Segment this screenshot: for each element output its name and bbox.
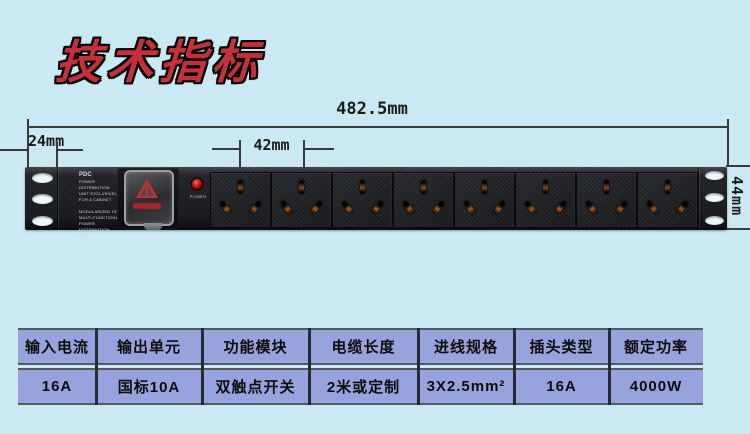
spec-table: 输入电流 输出单元 功能模块 电缆长度 进线规格 插头类型 额定功率 16A 国… [18, 328, 703, 405]
outlet-live-slot [280, 200, 293, 215]
outlet-module[interactable] [332, 172, 393, 228]
spec-header: 输出单元 [96, 330, 202, 363]
outlet-earth-slot [543, 180, 548, 194]
outlet-live-slot [585, 200, 598, 215]
outlet-earth-slot [665, 180, 670, 194]
outlet-earth-slot [482, 180, 487, 194]
spec-header: 输入电流 [18, 330, 96, 363]
dim-label-total-width: 482.5mm [272, 99, 472, 119]
table-divider [308, 328, 311, 405]
cover-latch-tab[interactable] [144, 223, 162, 230]
dim-stub-pitch-a [212, 148, 240, 150]
outlet-live-slot [219, 200, 232, 215]
dim-label-outlet-pitch: 42mm [240, 136, 303, 154]
dim-stub-pitch-b [304, 148, 334, 150]
breaker-switch[interactable] [117, 168, 179, 229]
outlet-neutral-slot [432, 200, 445, 215]
outlet-module[interactable] [393, 172, 454, 228]
spec-value: 2米或定制 [309, 370, 418, 403]
outlet-neutral-slot [615, 200, 628, 215]
table-divider [201, 328, 204, 405]
mount-hole [32, 173, 53, 183]
spec-value: 双触点开关 [202, 370, 309, 403]
dim-tick-left-offset [56, 142, 58, 167]
power-led-indicator [192, 179, 202, 189]
spec-table-value-row: 16A 国标10A 双触点开关 2米或定制 3X2.5mm² 16A 4000W [18, 368, 703, 405]
outlet-module[interactable] [515, 172, 576, 228]
outlet-neutral-slot [371, 200, 384, 215]
outlet-neutral-slot [676, 200, 689, 215]
mount-hole [705, 193, 724, 202]
dim-stub-left-offset-b [56, 149, 83, 151]
outlet-earth-slot [604, 180, 609, 194]
spec-header: 进线规格 [418, 330, 514, 363]
spec-value: 16A [514, 370, 609, 403]
outlet-module[interactable] [454, 172, 515, 228]
dim-tick-height-top [726, 165, 750, 167]
mount-hole [32, 216, 53, 226]
dim-tick-height-bottom [726, 228, 750, 230]
outlet-live-slot [341, 200, 354, 215]
outlet-earth-slot [299, 180, 304, 194]
outlet-neutral-slot [310, 200, 323, 215]
outlet-neutral-slot [249, 200, 262, 215]
outlet-live-slot [402, 200, 415, 215]
mount-hole [32, 194, 53, 204]
dim-stub-left-offset-a [0, 149, 28, 151]
spec-header: 电缆长度 [309, 330, 418, 363]
spec-value: 3X2.5mm² [418, 370, 514, 403]
warning-triangle-icon [136, 179, 158, 198]
bracket-fold [699, 167, 700, 230]
outlet-module[interactable] [637, 172, 698, 228]
outlet-module[interactable] [576, 172, 637, 228]
dim-line-total-width [28, 126, 728, 128]
spec-header: 功能模块 [202, 330, 309, 363]
spec-value: 国标10A [96, 370, 202, 403]
table-divider [513, 328, 516, 405]
dim-tick-pitch-a [239, 140, 241, 167]
dim-tick-right [727, 119, 729, 167]
spec-value: 16A [18, 370, 96, 403]
outlet-earth-slot [421, 180, 426, 194]
outlet-earth-slot [238, 180, 243, 194]
outlet-live-slot [646, 200, 659, 215]
power-led-label: POWER [185, 194, 211, 199]
spec-header: 额定功率 [609, 330, 703, 363]
spec-value: 4000W [609, 370, 703, 403]
dim-label-height: 44mm [728, 176, 746, 216]
outlet-module[interactable] [271, 172, 332, 228]
switch-safety-cover[interactable] [124, 170, 174, 226]
table-divider [608, 328, 611, 405]
outlet-neutral-slot [554, 200, 567, 215]
dim-tick-pitch-b [303, 140, 305, 167]
spec-header: 插头类型 [514, 330, 609, 363]
outlet-neutral-slot [493, 200, 506, 215]
mount-hole [705, 171, 724, 180]
page-title: 技术指标 [54, 26, 267, 92]
dim-label-left-offset: 24mm [28, 132, 64, 150]
outlet-earth-slot [360, 180, 365, 194]
warning-text-strip [133, 203, 161, 209]
outlet-module[interactable] [210, 172, 271, 228]
mount-hole [705, 216, 724, 225]
outlet-live-slot [524, 200, 537, 215]
outlet-row [210, 172, 698, 228]
table-divider [417, 328, 420, 405]
table-divider [95, 328, 98, 405]
bracket-fold [58, 167, 59, 230]
outlet-live-slot [463, 200, 476, 215]
spec-table-header-row: 输入电流 输出单元 功能模块 电缆长度 进线规格 插头类型 额定功率 [18, 328, 703, 365]
pdu-strip: PDC POWER DISTRIBUTION UNIT EXCLUSIVELY … [25, 167, 727, 230]
